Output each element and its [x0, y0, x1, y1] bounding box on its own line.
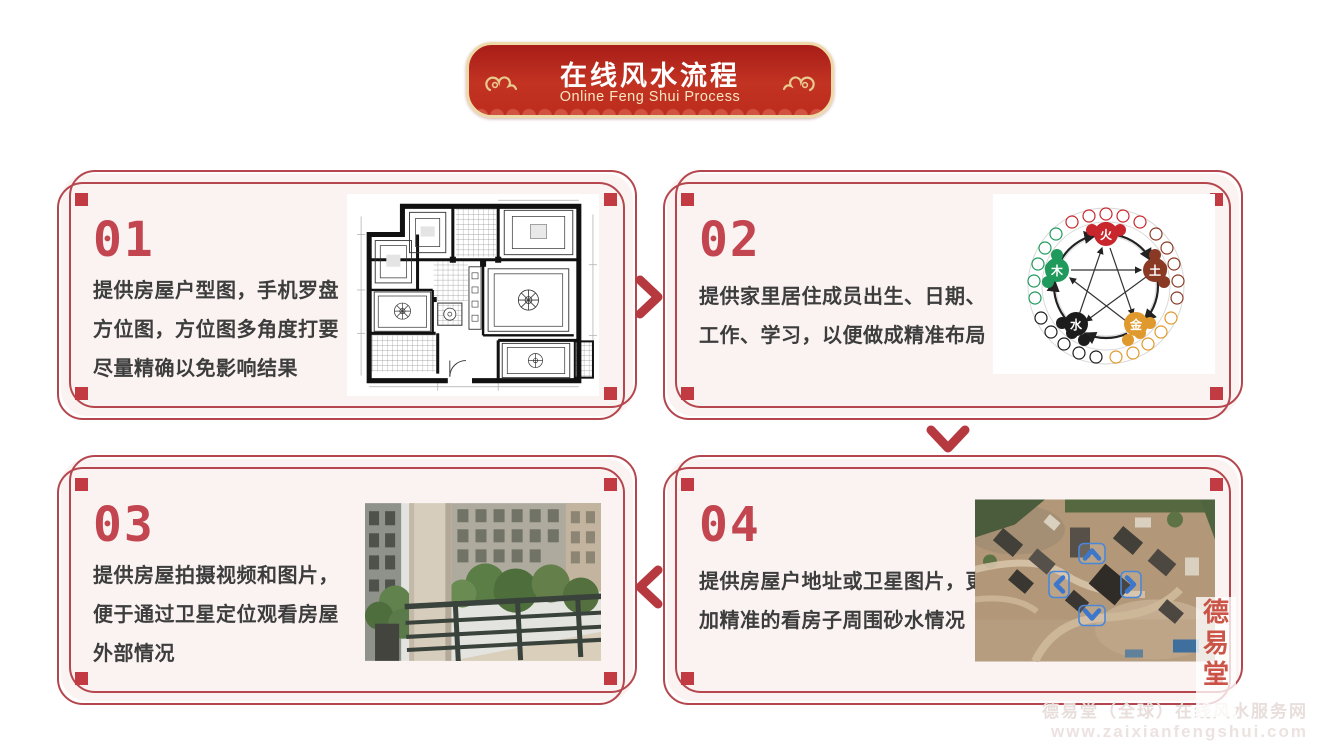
- corner-square: [1210, 387, 1223, 400]
- text-line: 提供家里居住成员出生、日期、: [699, 278, 986, 317]
- balcony-photo: [365, 503, 601, 661]
- satellite-photo: [975, 499, 1215, 662]
- text-line: 工作、学习，以便做成精准布局: [699, 317, 986, 356]
- fire-label: 火: [1100, 228, 1113, 242]
- step-description: 提供家里居住成员出生、日期、 工作、学习，以便做成精准布局: [699, 278, 986, 356]
- step-number: 04: [699, 497, 761, 553]
- seal-watermark: 德 易 堂: [1196, 597, 1236, 717]
- step-description: 提供房屋户型图，手机罗盘 方位图，方位图多角度打要 尽量精确以免影响结果: [93, 272, 339, 389]
- corner-square: [75, 478, 88, 491]
- page-subtitle: Online Feng Shui Process: [469, 89, 831, 105]
- corner-square: [681, 672, 694, 685]
- earth-label: 土: [1149, 263, 1161, 278]
- step-number: 01: [93, 212, 155, 268]
- seal-character: 易: [1203, 628, 1229, 659]
- text-line: 便于通过卫星定位观看房屋: [93, 596, 339, 635]
- wood-label: 木: [1050, 263, 1064, 278]
- metal-label: 金: [1129, 317, 1143, 332]
- site-watermark: 德易堂（全球）在线风水服务网 www.zaixianfengshui.com: [1042, 697, 1308, 742]
- corner-square: [681, 387, 694, 400]
- five-elements-diagram: 火 土 金 水 木: [993, 194, 1215, 374]
- corner-square: [604, 193, 617, 206]
- corner-square: [75, 672, 88, 685]
- corner-square: [681, 478, 694, 491]
- cloud-ornament-icon: [781, 71, 817, 97]
- step-description: 提供房屋户地址或卫星图片，更 加精准的看房子周围砂水情况: [699, 563, 986, 641]
- site-url: www.zaixianfengshui.com: [1042, 722, 1308, 742]
- flow-arrow-right-icon: [634, 274, 664, 320]
- corner-square: [681, 193, 694, 206]
- step-card-01: 01 提供房屋户型图，手机罗盘 方位图，方位图多角度打要 尽量精确以免影响结果: [57, 170, 637, 420]
- header-banner: 在线风水流程 Online Feng Shui Process: [466, 42, 834, 118]
- step-number: 03: [93, 497, 155, 553]
- step-card-02: 02 提供家里居住成员出生、日期、 工作、学习，以便做成精准布局: [663, 170, 1243, 420]
- seal-character: 德: [1203, 597, 1229, 628]
- flow-arrow-left-icon: [634, 564, 664, 610]
- banner-background: 在线风水流程 Online Feng Shui Process: [466, 42, 834, 118]
- text-line: 提供房屋户型图，手机罗盘: [93, 272, 339, 311]
- site-name: 德易堂（全球）在线风水服务网: [1042, 697, 1308, 722]
- text-line: 方位图，方位图多角度打要: [93, 311, 339, 350]
- corner-square: [1210, 478, 1223, 491]
- text-line: 提供房屋户地址或卫星图片，更: [699, 563, 986, 602]
- page-title: 在线风水流程: [469, 54, 831, 93]
- step-card-04: 04 提供房屋户地址或卫星图片，更 加精准的看房子周围砂水情况: [663, 455, 1243, 705]
- corner-square: [604, 387, 617, 400]
- text-line: 尽量精确以免影响结果: [93, 350, 339, 389]
- step-number: 02: [699, 212, 761, 268]
- corner-square: [75, 387, 88, 400]
- text-line: 提供房屋拍摄视频和图片，: [93, 557, 339, 596]
- water-label: 水: [1070, 317, 1083, 332]
- corner-square: [604, 672, 617, 685]
- flow-arrow-down-icon: [925, 424, 971, 454]
- corner-square: [75, 193, 88, 206]
- text-line: 外部情况: [93, 635, 339, 674]
- step-card-03: 03 提供房屋拍摄视频和图片， 便于通过卫星定位观看房屋 外部情况: [57, 455, 637, 705]
- text-line: 加精准的看房子周围砂水情况: [699, 602, 986, 641]
- seal-character: 堂: [1203, 659, 1229, 690]
- corner-square: [604, 478, 617, 491]
- floor-plan-image: [347, 194, 599, 396]
- cloud-ornament-icon: [483, 71, 519, 97]
- feng-shui-process-page: 在线风水流程 Online Feng Shui Process 01 提供房屋户…: [0, 0, 1318, 748]
- step-description: 提供房屋拍摄视频和图片， 便于通过卫星定位观看房屋 外部情况: [93, 557, 339, 674]
